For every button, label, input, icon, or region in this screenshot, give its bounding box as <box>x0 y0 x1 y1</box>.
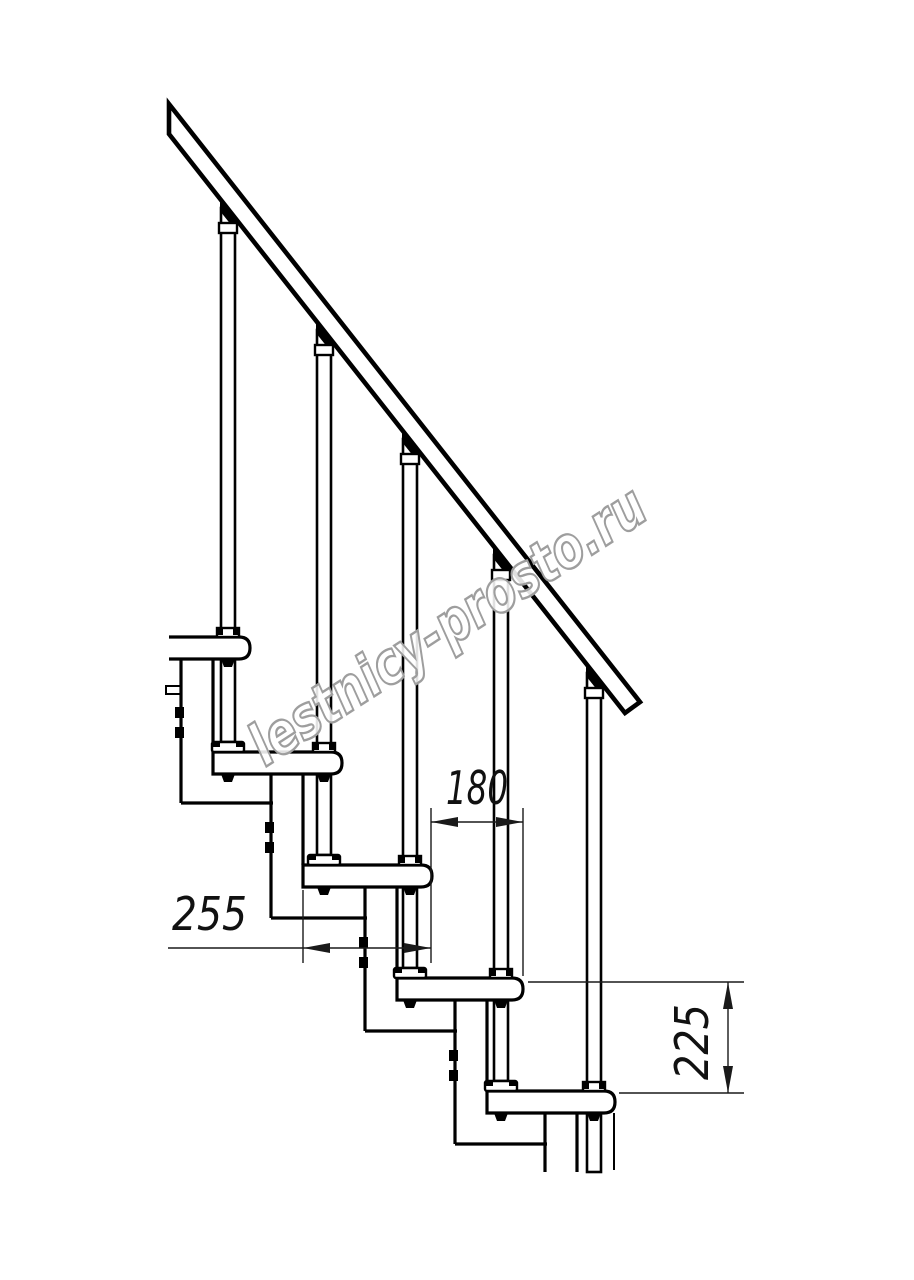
nut-icon <box>403 1000 417 1008</box>
baluster-tubes <box>221 208 601 1172</box>
bolt-icon <box>265 842 274 853</box>
dimension-tread-depth: 255 <box>168 887 431 963</box>
dimension-arrow-left <box>303 943 330 953</box>
dimension-riser-height: 225 <box>528 982 744 1093</box>
dimension-arrow-left <box>431 817 458 827</box>
bolt-icon <box>175 707 184 718</box>
nut-icon <box>221 774 235 782</box>
support-module-5 <box>545 1113 577 1172</box>
nut-icon <box>494 1113 508 1121</box>
tread-4 <box>397 978 523 1000</box>
technical-drawing-page: 180 255 225 lestnicy-prosto.ru <box>0 0 914 1280</box>
clipped-connector-tab <box>166 686 181 694</box>
dimension-text-180: 180 <box>446 761 508 815</box>
dimension-arrow-right <box>496 817 523 827</box>
dimension-text-255: 255 <box>172 887 247 941</box>
staircase-side-view-drawing: 180 255 225 lestnicy-prosto.ru <box>0 0 914 1280</box>
bolt-icon <box>265 822 274 833</box>
baluster-top-collar <box>585 688 603 698</box>
bolt-icon <box>359 937 368 948</box>
dimension-arrow-down <box>723 1066 733 1093</box>
dimension-text-225: 225 <box>665 1004 719 1080</box>
tread-3 <box>303 865 432 887</box>
baluster-top-collar <box>401 454 419 464</box>
bolt-icon <box>449 1070 458 1081</box>
tread-5 <box>487 1091 615 1113</box>
nut-icon <box>317 887 331 895</box>
baluster-top-collar <box>219 223 237 233</box>
tread-1 <box>169 637 250 659</box>
bolt-icon <box>175 727 184 738</box>
dimension-arrow-up <box>723 982 733 1009</box>
bolt-icon <box>449 1050 458 1061</box>
bolt-icon <box>359 957 368 968</box>
baluster-top-collar <box>315 345 333 355</box>
